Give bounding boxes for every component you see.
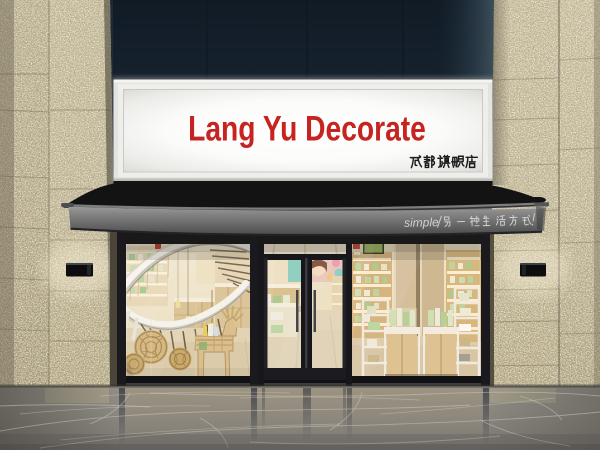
svg-text:simple: simple xyxy=(404,215,439,230)
svg-text:Lang Yu Decorate: Lang Yu Decorate xyxy=(188,108,426,148)
